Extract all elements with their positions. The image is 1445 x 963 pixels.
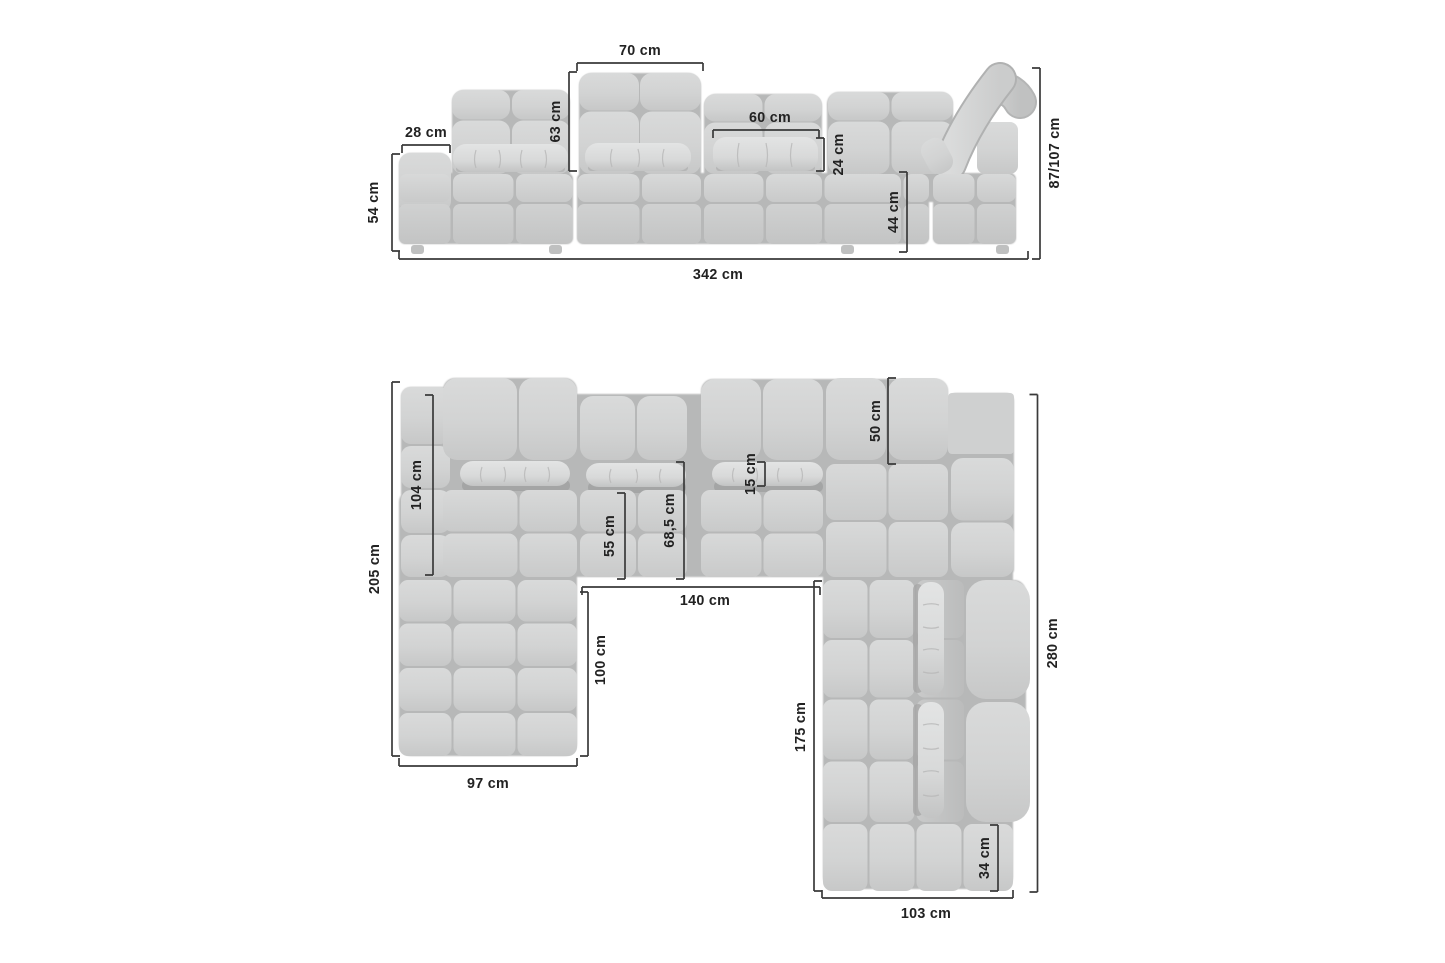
svg-text:50 cm: 50 cm (868, 400, 884, 442)
svg-text:342 cm: 342 cm (693, 267, 743, 283)
svg-text:280 cm: 280 cm (1045, 618, 1061, 668)
svg-text:55 cm: 55 cm (602, 515, 618, 557)
svg-text:205 cm: 205 cm (367, 544, 383, 594)
svg-text:100 cm: 100 cm (593, 635, 609, 685)
svg-text:63 cm: 63 cm (548, 100, 564, 142)
svg-text:28 cm: 28 cm (405, 125, 447, 141)
svg-text:68,5 cm: 68,5 cm (662, 493, 678, 548)
svg-text:44 cm: 44 cm (886, 191, 902, 233)
svg-text:103 cm: 103 cm (901, 906, 951, 922)
svg-text:15 cm: 15 cm (743, 453, 759, 495)
svg-text:87/107 cm: 87/107 cm (1047, 117, 1063, 188)
svg-text:24 cm: 24 cm (831, 133, 847, 175)
svg-text:175 cm: 175 cm (793, 702, 809, 752)
svg-text:97 cm: 97 cm (467, 776, 509, 792)
svg-text:54 cm: 54 cm (366, 181, 382, 223)
svg-text:70 cm: 70 cm (619, 43, 661, 59)
svg-text:60 cm: 60 cm (749, 110, 791, 126)
svg-text:34 cm: 34 cm (977, 837, 993, 879)
svg-text:104 cm: 104 cm (409, 460, 425, 510)
svg-text:140 cm: 140 cm (680, 593, 730, 609)
